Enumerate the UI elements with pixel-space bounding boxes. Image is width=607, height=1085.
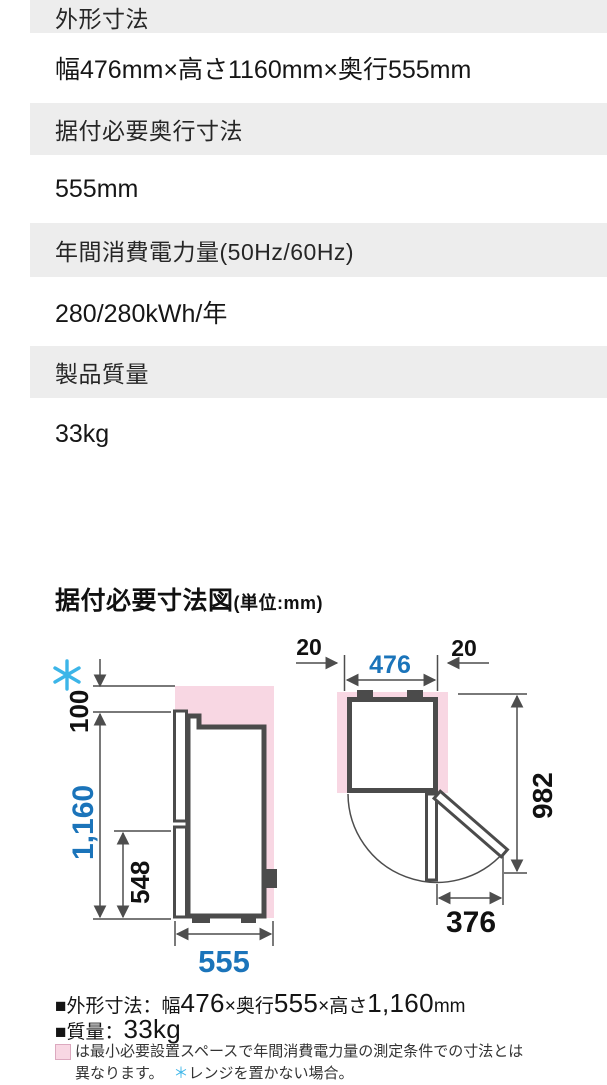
door-open-135 (434, 791, 507, 857)
spec-label: 据付必要奥行寸法 (55, 112, 243, 146)
asterisk-note-icon: ＊ (174, 1065, 189, 1082)
dim-label-depth: 555 (198, 944, 250, 979)
note-text: は最小必要設置スペースで年間消費電力量の測定条件での寸法とは 異なります。＊レン… (75, 1041, 523, 1085)
spec-value: 33kg (55, 420, 109, 449)
note-line1: は最小必要設置スペースで年間消費電力量の測定条件での寸法とは (75, 1043, 523, 1060)
footer-text: ×奥行 (225, 996, 274, 1017)
dim-label-total-depth: 982 (527, 772, 558, 819)
top-view: 20 476 20 982 376 (296, 634, 558, 939)
spec-label: 外形寸法 (55, 0, 149, 34)
fridge-body-top (350, 700, 436, 791)
installation-dimension-diagram: 100 1,160 548 555 (0, 620, 607, 990)
pink-legend-swatch-icon (55, 1044, 71, 1060)
upper-door-side (175, 711, 187, 821)
dim-label-gap-left: 20 (296, 634, 322, 660)
footer-number: 1,160 (367, 988, 434, 1018)
spec-page: { "colors": { "accent_blue": "#1b74ba", … (0, 0, 607, 1080)
dim-label-door-width: 376 (446, 906, 496, 939)
spec-row-label-energy: 年間消費電力量(50Hz/60Hz) (30, 223, 607, 277)
footer-number: 33kg (123, 1014, 181, 1044)
dim-label-lower-height: 548 (125, 861, 155, 904)
fridge-body-side (188, 716, 264, 916)
lower-door-side (175, 827, 187, 917)
spec-value: 280/280kWh/年 (55, 294, 227, 330)
footer-text: mm (434, 996, 466, 1017)
note-line2b: レンジを置かない場合。 (189, 1065, 354, 1082)
installation-diagram-title: 据付必要寸法図(単位:mm) (55, 581, 323, 617)
diagram-title-text: 据付必要寸法図 (55, 587, 234, 615)
footer-note: は最小必要設置スペースで年間消費電力量の測定条件での寸法とは 異なります。＊レン… (55, 1041, 523, 1085)
spec-row-value-energy: 280/280kWh/年 (0, 277, 607, 346)
spec-row-label-dimensions: 外形寸法 (30, 0, 607, 33)
footer-number: 476 (180, 988, 224, 1018)
note-line2a: 異なります。 (75, 1065, 164, 1082)
spec-label: 年間消費電力量(50Hz/60Hz) (55, 233, 354, 267)
dim-label-top-clearance: 100 (64, 690, 94, 733)
hinge-left (357, 690, 373, 699)
spec-row-label-weight: 製品質量 (30, 346, 607, 398)
diagram-unit-text: (単位:mm) (234, 593, 324, 613)
dim-label-gap-right: 20 (451, 635, 477, 661)
hinge-right (407, 690, 423, 699)
footer-number: 555 (274, 988, 318, 1018)
spec-value: 555mm (55, 175, 138, 204)
spec-row-value-depth: 555mm (0, 155, 607, 223)
dim-label-width: 476 (369, 651, 411, 679)
rear-foot (241, 914, 256, 923)
front-foot (192, 914, 210, 923)
dim-label-height: 1,160 (67, 785, 100, 860)
spec-row-value-dimensions: 幅476mm×高さ1160mm×奥行555mm (0, 33, 607, 103)
asterisk-icon (55, 661, 79, 689)
footer-text: ×高さ (318, 996, 367, 1017)
spec-row-value-weight: 33kg (0, 398, 607, 470)
spec-label: 製品質量 (55, 355, 149, 389)
footer-text: ■質量： (55, 1022, 123, 1043)
back-notch (264, 869, 277, 888)
door-open-90 (427, 794, 437, 880)
spec-row-label-depth: 据付必要奥行寸法 (30, 103, 607, 155)
spec-value: 幅476mm×高さ1160mm×奥行555mm (55, 50, 471, 86)
side-view: 100 1,160 548 555 (55, 659, 277, 979)
